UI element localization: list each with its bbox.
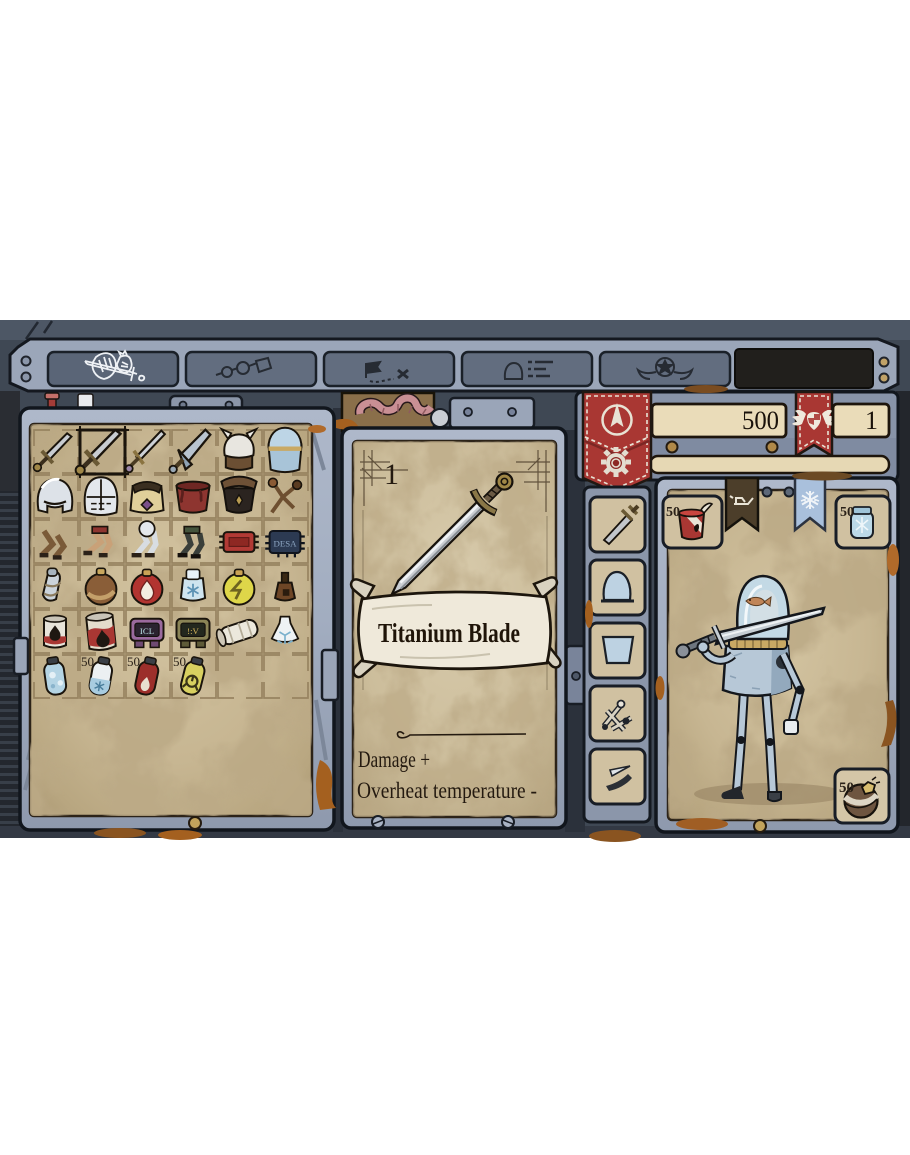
svg-text:50: 50: [840, 505, 854, 520]
svg-text:!:V: !:V: [187, 626, 199, 636]
svg-text:50: 50: [81, 654, 94, 669]
svg-text:1: 1: [865, 406, 878, 435]
svg-text:50: 50: [839, 780, 854, 796]
svg-text:500: 500: [742, 406, 779, 435]
svg-text:Overheat temperature -: Overheat temperature -: [357, 778, 537, 803]
svg-text:Titanium Blade: Titanium Blade: [378, 618, 520, 648]
svg-text:ICL: ICL: [140, 626, 154, 636]
svg-text:DESA: DESA: [274, 538, 298, 548]
svg-text:50: 50: [173, 654, 186, 669]
svg-text:50: 50: [127, 654, 140, 669]
svg-text:50: 50: [666, 505, 680, 520]
svg-text:1: 1: [384, 458, 399, 491]
svg-text:Damage +: Damage +: [358, 747, 430, 772]
